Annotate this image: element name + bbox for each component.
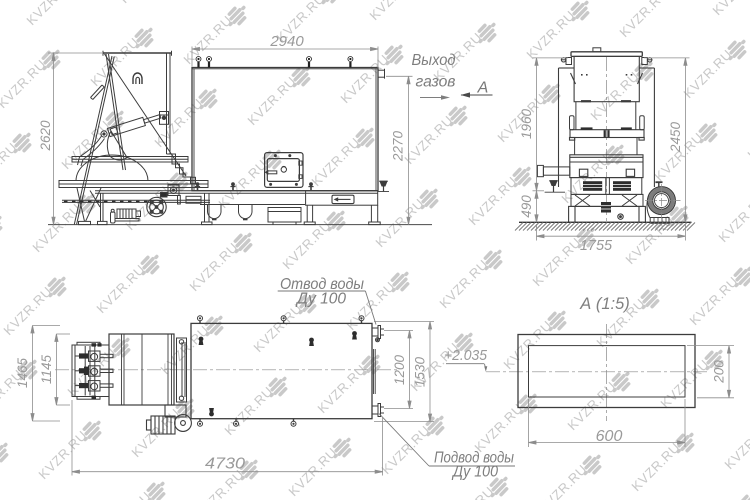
svg-text:4730: 4730 [205,456,245,473]
svg-text:2940: 2940 [269,33,304,50]
svg-text:2270: 2270 [391,130,406,162]
svg-text:2450: 2450 [668,121,683,153]
svg-text:200: 200 [712,360,727,384]
svg-text:1530: 1530 [413,356,428,387]
svg-text:1465: 1465 [15,357,30,388]
svg-text:+2.035: +2.035 [444,348,488,364]
svg-text:1200: 1200 [392,354,407,385]
svg-text:1145: 1145 [39,354,54,384]
svg-text:Ду 100: Ду 100 [295,291,346,308]
svg-text:газов: газов [416,74,456,91]
svg-text:600: 600 [596,428,623,445]
svg-text:490: 490 [519,195,534,218]
svg-text:1960: 1960 [519,108,534,139]
svg-text:Выход: Выход [412,52,456,69]
svg-text:1755: 1755 [580,238,613,254]
svg-text:А (1:5): А (1:5) [579,295,630,313]
svg-text:А: А [477,80,489,97]
svg-text:2620: 2620 [38,120,53,152]
